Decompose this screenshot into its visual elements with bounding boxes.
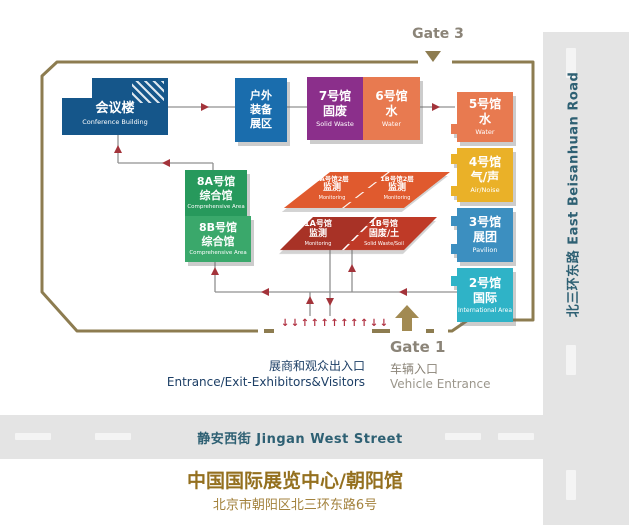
- venue-address: 北京市朝阳区北三环东路6号: [0, 494, 590, 513]
- hall-category-en: Water: [475, 128, 494, 136]
- hall-category: 水: [385, 104, 397, 119]
- hall-tab: [451, 216, 457, 226]
- gate3-label: Gate 3: [408, 26, 468, 42]
- south-road-lane-mark: [498, 433, 534, 440]
- visitor-entrance-en: Entrance/Exit-Exhibitors&Visitors: [110, 375, 365, 389]
- hall-4: 4号馆 气/声 Air/Noise: [457, 148, 513, 202]
- hatch-decoration: [132, 81, 164, 103]
- hall-name: 8A号馆: [197, 175, 235, 189]
- hall-name: 户外: [250, 89, 272, 103]
- hall-name: 7号馆: [319, 89, 351, 104]
- pedestrian-flow-icons: ↓↓↑↑↑↑↑↑↑↓↓: [281, 317, 390, 331]
- hall-6: 6号馆 水 Water: [363, 77, 420, 140]
- hall-2: 2号馆 国际 International Area: [457, 268, 513, 322]
- hall-1b-label: 1B号馆 固废/土 Solid Waste/Soil: [350, 219, 418, 248]
- hall-tab: [451, 186, 457, 196]
- hall-name: 装备: [250, 103, 272, 117]
- hall-3: 3号馆 展团 Pavilion: [457, 208, 513, 262]
- hall-name: 8B号馆: [199, 221, 237, 235]
- hall-category: 水: [479, 112, 491, 127]
- hall-8b: 8B号馆 综合馆 Comprehensive Area: [185, 216, 251, 262]
- hall-conference-building: 会议楼 Conference Building: [62, 78, 168, 135]
- hall-name: 6号馆: [375, 89, 407, 104]
- hall-category: 固废: [323, 104, 347, 119]
- hall-5: 5号馆 水 Water: [457, 92, 513, 142]
- hall-category: 综合馆: [202, 235, 235, 249]
- gate3-arrow-icon: [425, 51, 441, 62]
- east-road-label: 北三环东路 East Beisanhuan Road: [563, 45, 582, 345]
- gate1-label: Gate 1: [390, 338, 445, 356]
- hall-category-en: Comprehensive Area: [189, 250, 246, 257]
- hall-8a: 8A号馆 综合馆 Comprehensive Area: [185, 170, 247, 216]
- hall-category: 展团: [473, 230, 497, 245]
- hall-1a-label: 1A号馆 监测 Monitoring: [288, 219, 348, 248]
- hall-category: 气/声: [471, 170, 499, 185]
- hall-category-en: Comprehensive Area: [187, 204, 244, 211]
- hall-category-en: International Area: [458, 307, 512, 315]
- vehicle-entrance-zh: 车辆入口: [390, 360, 438, 377]
- hall-tab: [451, 244, 457, 254]
- hall-7: 7号馆 固废 Solid Waste: [307, 77, 363, 140]
- hall-category-en: Water: [382, 120, 401, 128]
- south-road-lane-mark: [445, 433, 481, 440]
- hall-1b-2f-label: 1B号馆2层 监测 Monitoring: [365, 175, 429, 202]
- hall-category: 国际: [473, 291, 497, 306]
- south-road-lane-mark: [95, 433, 131, 440]
- hall-category-en: Air/Noise: [470, 186, 499, 194]
- south-road-label: 静安西街 Jingan West Street: [180, 428, 420, 447]
- hall-category: 综合馆: [200, 189, 233, 203]
- hall-outdoor-area: 户外 装备 展区: [235, 78, 287, 142]
- gate1-arrow-icon: [395, 305, 419, 331]
- hall-tab: [451, 154, 457, 164]
- hall-name: 5号馆: [469, 97, 501, 112]
- hall-category-en: Pavilion: [473, 246, 498, 254]
- hall-name: 4号馆: [469, 155, 501, 170]
- hall-name: 会议楼: [95, 101, 134, 117]
- hall-name: 2号馆: [469, 276, 501, 291]
- hall-name: 3号馆: [469, 215, 501, 230]
- south-road-lane-mark: [15, 433, 51, 440]
- hall-name-en: Conference Building: [82, 118, 148, 126]
- vehicle-entrance-en: Vehicle Entrance: [390, 377, 491, 391]
- hall-tab: [451, 124, 457, 134]
- venue-map: 静安西街 Jingan West Street 北三环东路 East Beisa…: [0, 0, 637, 525]
- hall-name: 展区: [250, 117, 272, 131]
- hall-1a-2f-label: 1A号馆2层 监测 Monitoring: [300, 175, 364, 202]
- venue-title: 中国国际展览中心/朝阳馆: [0, 466, 590, 493]
- east-road-lane-mark: [566, 345, 576, 375]
- hall-tab: [451, 276, 457, 286]
- hall-category-en: Solid Waste: [316, 120, 354, 128]
- visitor-entrance-zh: 展商和观众出入口: [165, 357, 365, 374]
